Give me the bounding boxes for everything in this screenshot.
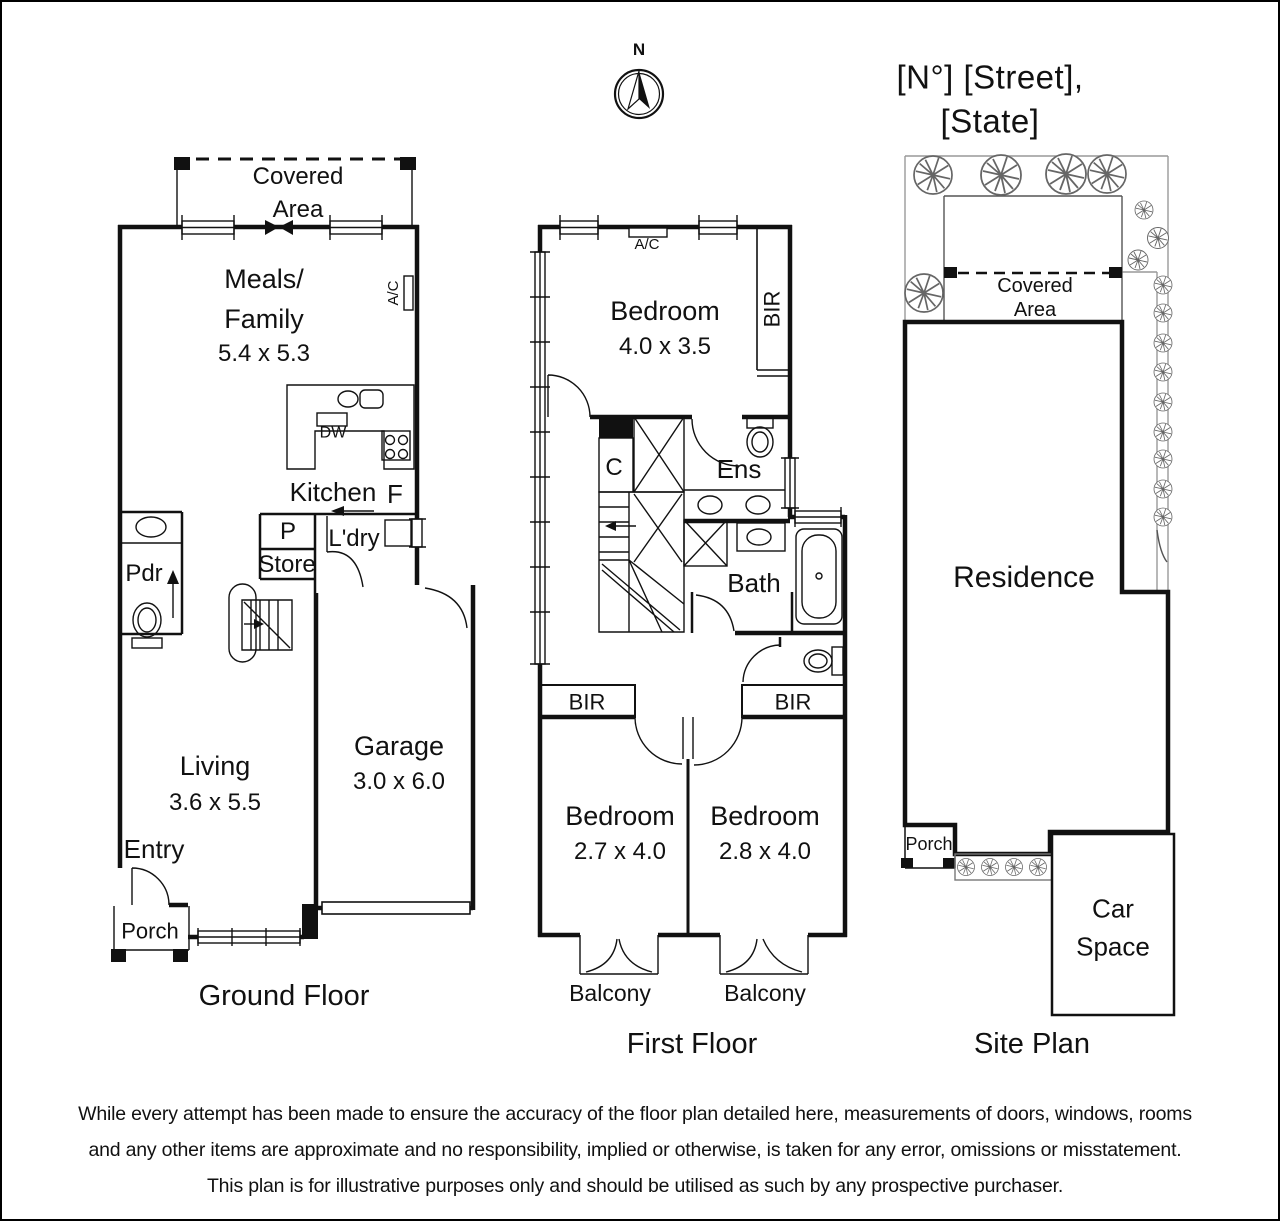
gf-garage-label: Garage bbox=[354, 729, 444, 765]
gf-entry-label: Entry bbox=[124, 832, 185, 866]
gf-laundry-label: L'dry bbox=[328, 523, 379, 555]
ff-ensuite-label: Ens bbox=[717, 452, 762, 486]
gf-covered-area-label: Covered Area bbox=[253, 160, 344, 226]
sp-covered-area-label: Covered Area bbox=[997, 274, 1073, 322]
disclaimer-line-2: and any other items are approximate and … bbox=[35, 1138, 1235, 1164]
gf-pantry-label: P bbox=[280, 516, 296, 548]
disclaimer-line-3: This plan is for illustrative purposes o… bbox=[35, 1174, 1235, 1200]
ff-balcony-left-label: Balcony bbox=[569, 978, 651, 1008]
ff-bath-label: Bath bbox=[727, 566, 781, 600]
gf-meals-family-label: Meals/ Family bbox=[224, 260, 304, 340]
sp-caption: Site Plan bbox=[974, 1025, 1090, 1063]
ff-caption: First Floor bbox=[627, 1025, 758, 1063]
ff-bedroom1-label: Bedroom bbox=[610, 294, 720, 330]
ff-bedroom3-label: Bedroom bbox=[710, 799, 820, 835]
gf-living-label: Living bbox=[180, 749, 251, 785]
gf-ac-label: A/C bbox=[384, 280, 404, 305]
sp-residence-label: Residence bbox=[953, 558, 1095, 598]
ff-bedroom2-dim: 2.7 x 4.0 bbox=[574, 836, 666, 868]
ff-bir-right-label: BIR bbox=[757, 291, 786, 328]
sp-porch-label: Porch bbox=[905, 833, 952, 857]
gf-living-dim: 3.6 x 5.5 bbox=[169, 787, 261, 819]
floor-plan-page: N [N°] [Street], [State] Covered Area Me… bbox=[0, 0, 1280, 1221]
ff-bir-mid-label: BIR bbox=[775, 687, 812, 716]
address-title: [N°] [Street], [State] bbox=[846, 55, 1134, 142]
gf-porch-label: Porch bbox=[121, 916, 178, 945]
gf-kitchen-label: Kitchen bbox=[290, 475, 377, 509]
gf-fridge-label: F bbox=[387, 477, 403, 511]
gf-powder-label: Pdr bbox=[125, 558, 162, 590]
ff-closet-label: C bbox=[605, 452, 622, 484]
ff-ac-label: A/C bbox=[634, 235, 659, 255]
ff-bedroom3-dim: 2.8 x 4.0 bbox=[719, 836, 811, 868]
ff-bedroom2-label: Bedroom bbox=[565, 799, 675, 835]
ff-bir-left-label: BIR bbox=[569, 687, 606, 716]
disclaimer-line-1: While every attempt has been made to ens… bbox=[35, 1102, 1235, 1128]
gf-garage-dim: 3.0 x 6.0 bbox=[353, 766, 445, 798]
ff-bedroom1-dim: 4.0 x 3.5 bbox=[619, 331, 711, 363]
gf-caption: Ground Floor bbox=[199, 977, 370, 1015]
compass-icon bbox=[615, 70, 663, 118]
sp-car-space-label: Car Space bbox=[1076, 890, 1150, 965]
gf-dw-label: DW bbox=[320, 422, 347, 443]
gf-meals-dim: 5.4 x 5.3 bbox=[218, 338, 310, 370]
compass-north-label: N bbox=[633, 39, 645, 61]
gf-store-label: Store bbox=[258, 549, 315, 581]
ff-balcony-right-label: Balcony bbox=[724, 978, 806, 1008]
